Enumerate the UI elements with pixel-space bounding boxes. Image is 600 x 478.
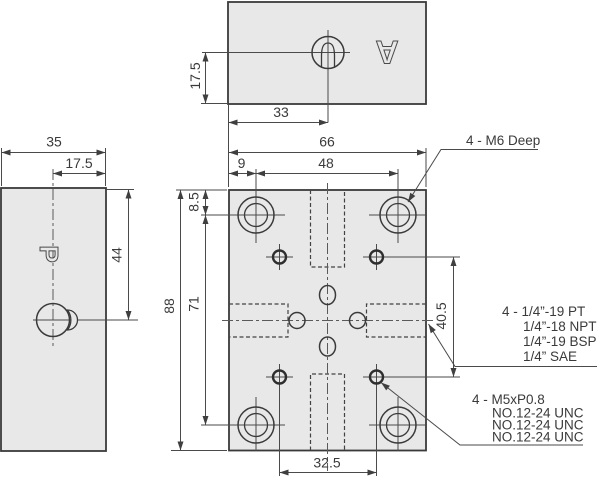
port-spec-line-1: 4 - 1/4”-19 PT	[502, 304, 585, 319]
view-a-marking: A	[375, 34, 398, 70]
dim-side-35-label: 35	[46, 134, 62, 150]
port-spec-line-4: 1/4” SAE	[523, 349, 577, 364]
m6-annotation: 4 - M6 Deep	[466, 133, 540, 148]
m5-spec-line-4: NO.12-24 UNC	[492, 430, 584, 445]
dim-front-71-label: 71	[186, 296, 202, 312]
port-spec-line-2: 1/4”-18 NPT	[523, 319, 597, 334]
dim-top-33-label: 33	[273, 104, 289, 120]
dim-front-40-5-label: 40.5	[433, 302, 449, 329]
dim-front-32-5-label: 32.5	[313, 455, 340, 471]
engineering-drawing: A 17.5 33 P 35 17.5 44	[0, 0, 600, 478]
side-view: P 35 17.5 44	[1, 134, 138, 452]
port-spec-line-3: 1/4”-19 BSP	[523, 334, 597, 349]
dim-front-66-label: 66	[319, 134, 335, 150]
drawing-canvas: A 17.5 33 P 35 17.5 44	[0, 0, 600, 478]
dim-side-17-5-label: 17.5	[65, 155, 92, 171]
dim-front-88-label: 88	[161, 298, 177, 314]
dim-front-9-label: 9	[238, 155, 246, 171]
dim-front-48-label: 48	[318, 155, 334, 171]
top-view: A 17.5 33	[187, 2, 426, 187]
logo-marking: P	[34, 245, 64, 262]
front-view: 66 9 48 88 8.5 71 40.5 32.5	[161, 134, 460, 477]
dim-front-8-5-label: 8.5	[186, 192, 202, 212]
leader-m6	[408, 150, 538, 203]
dim-top-17-5-label: 17.5	[187, 62, 203, 89]
dim-side-44-label: 44	[109, 247, 125, 263]
